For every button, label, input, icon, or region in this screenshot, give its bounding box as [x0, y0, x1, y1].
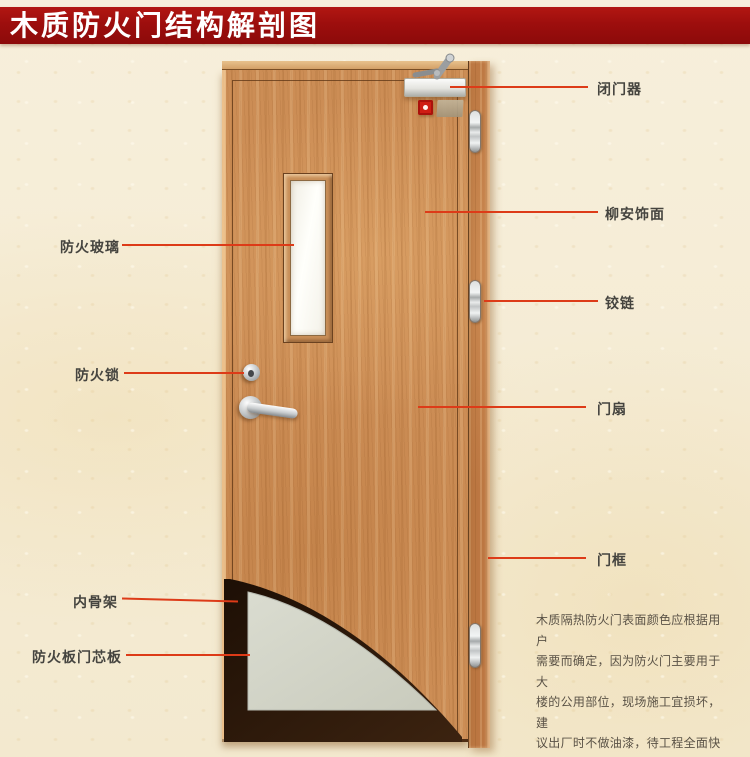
core-board-layer: [248, 592, 436, 710]
label-door-closer: 闭门器: [597, 79, 642, 99]
leader-line-hinge: [484, 300, 598, 302]
label-fire-glass: 防火玻璃: [60, 237, 120, 257]
leader-line-door-closer: [450, 86, 588, 88]
description-line: 需要而确定，因为防火门主要用于大: [536, 651, 722, 692]
hinge-top: [469, 110, 481, 153]
leader-line-door-frame: [488, 557, 586, 559]
page: 木质防火门结构解剖图: [0, 0, 750, 757]
description-line: 楼的公用部位，现场施工宜损坏，建: [536, 692, 722, 733]
leader-line-inner-skeleton: [122, 597, 238, 602]
label-door-leaf: 门扇: [597, 399, 627, 419]
hinge-bottom: [469, 623, 481, 668]
description-block: 木质隔热防火门表面颜色应根据用户 需要而确定，因为防火门主要用于大 楼的公用部位…: [536, 610, 722, 757]
door-closer-arm: [398, 52, 473, 82]
leader-line-fire-lock: [124, 372, 244, 374]
leader-line-core-board: [126, 654, 250, 656]
alarm-indicator-dot: [423, 105, 428, 110]
description-line: 木质隔热防火门表面颜色应根据用户: [536, 610, 722, 651]
label-hinge: 铰链: [605, 293, 635, 313]
alarm-indicator: [418, 100, 433, 115]
label-fire-lock: 防火锁: [75, 365, 120, 385]
door-plate: [436, 100, 463, 117]
label-door-frame: 门框: [597, 550, 627, 570]
label-core-board: 防火板门芯板: [32, 647, 122, 667]
title-banner: 木质防火门结构解剖图: [0, 7, 750, 44]
description-line: 议出厂时不做油漆，待工程全面快完: [536, 733, 722, 757]
hinge-middle: [469, 280, 481, 323]
label-veneer: 柳安饰面: [605, 204, 665, 224]
leader-line-fire-glass: [122, 244, 294, 246]
leader-line-veneer: [425, 211, 598, 213]
lock-cylinder: [243, 364, 260, 381]
page-title: 木质防火门结构解剖图: [0, 7, 750, 44]
lock-keyhole: [248, 370, 254, 377]
label-inner-skeleton: 内骨架: [73, 592, 118, 612]
leader-line-door-leaf: [418, 406, 586, 408]
